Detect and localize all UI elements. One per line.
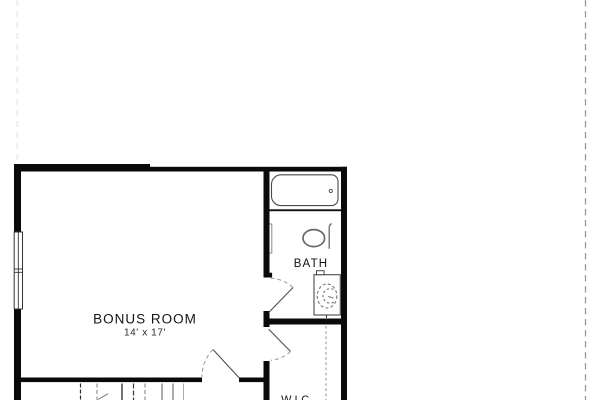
svg-text:BONUS ROOM: BONUS ROOM bbox=[93, 312, 197, 327]
svg-text:W.I.C.: W.I.C. bbox=[281, 394, 313, 400]
svg-text:14' x 17': 14' x 17' bbox=[124, 328, 166, 339]
svg-text:BATH: BATH bbox=[294, 258, 329, 270]
